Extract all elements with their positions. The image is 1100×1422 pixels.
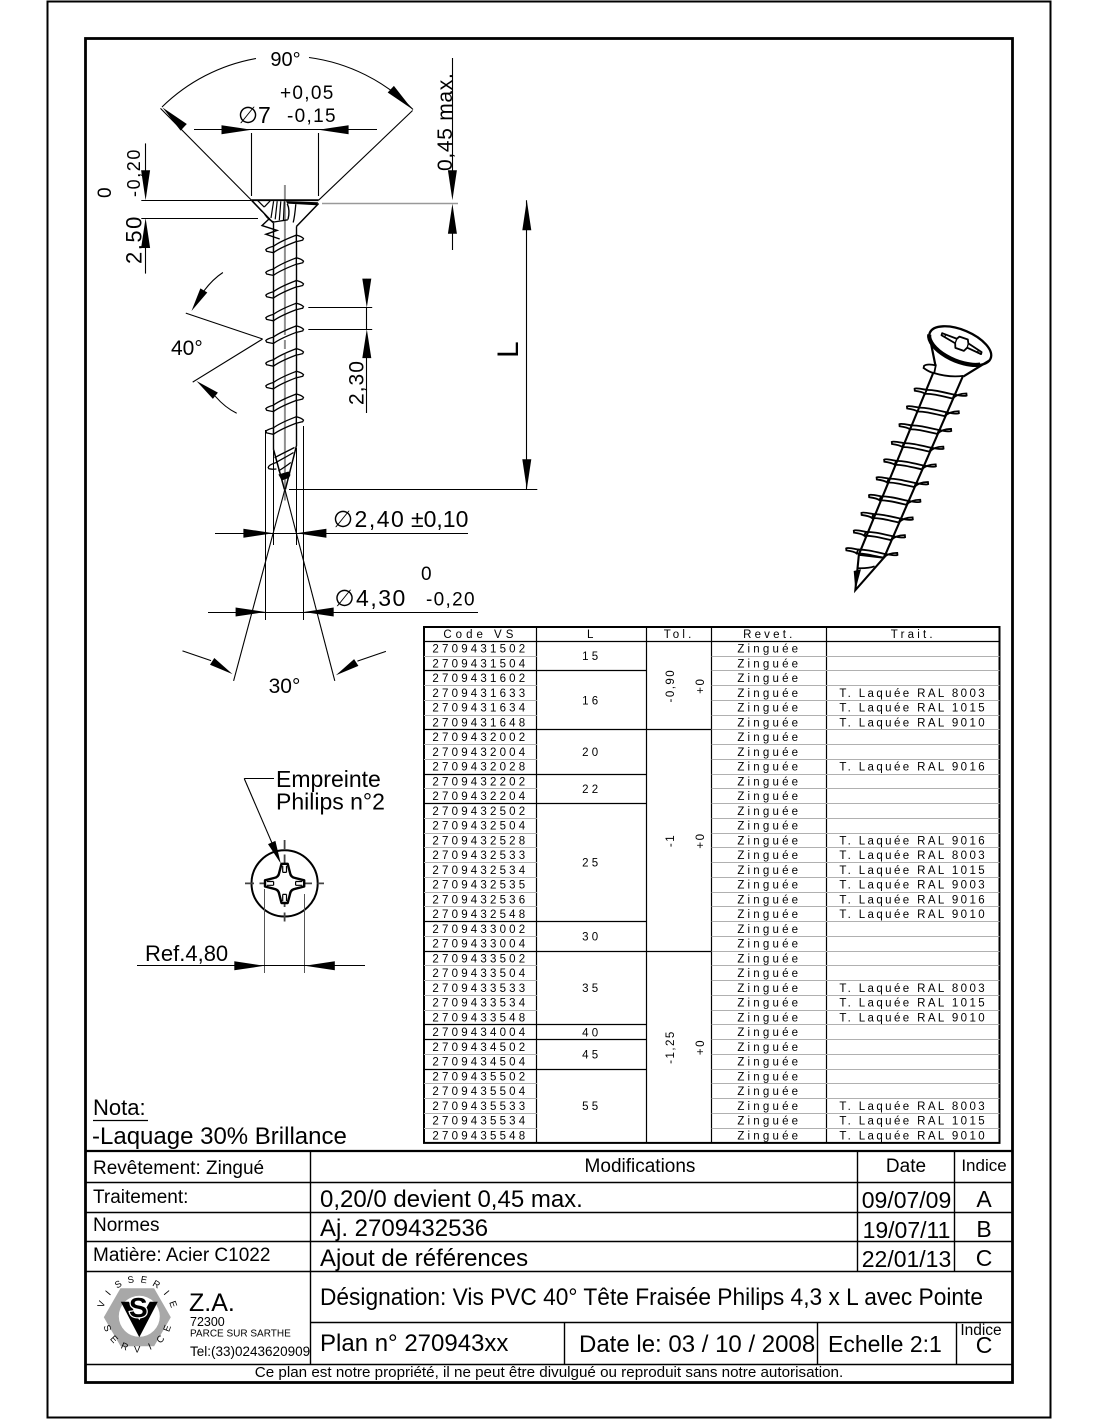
svg-text:35: 35 xyxy=(582,983,601,995)
svg-text:30°: 30° xyxy=(269,675,301,698)
svg-text:40°: 40° xyxy=(171,337,203,360)
svg-text:2,50: 2,50 xyxy=(122,215,147,264)
svg-text:Désignation: Vis PVC 40° Tête: Désignation: Vis PVC 40° Tête Fraisée Ph… xyxy=(320,1284,983,1311)
svg-text:2709431648: 2709431648 xyxy=(432,717,528,729)
svg-text:-0,90: -0,90 xyxy=(665,669,677,703)
svg-text:-1: -1 xyxy=(665,834,677,847)
svg-text:-1,25: -1,25 xyxy=(665,1030,677,1064)
svg-text:Zinguée: Zinguée xyxy=(737,850,801,862)
svg-text:2709432504: 2709432504 xyxy=(432,821,528,833)
svg-text:-0,15: -0,15 xyxy=(287,106,337,127)
svg-text:2709432528: 2709432528 xyxy=(432,835,528,847)
svg-text:Tel:(33)0243620909: Tel:(33)0243620909 xyxy=(190,1344,310,1359)
svg-text:Zinguée: Zinguée xyxy=(737,1057,801,1069)
svg-text:±0,10: ±0,10 xyxy=(411,506,468,532)
svg-text:Zinguée: Zinguée xyxy=(737,924,801,936)
svg-text:Zinguée: Zinguée xyxy=(737,894,801,906)
svg-text:2709435504: 2709435504 xyxy=(432,1086,528,1098)
svg-text:C: C xyxy=(976,1332,993,1358)
svg-text:72300: 72300 xyxy=(190,1315,225,1329)
svg-text:40: 40 xyxy=(582,1027,601,1039)
svg-text:T. Laquée RAL 9010: T. Laquée RAL 9010 xyxy=(839,909,987,921)
svg-text:-0,20: -0,20 xyxy=(124,148,144,197)
svg-text:Zinguée: Zinguée xyxy=(737,968,801,980)
svg-text:Aj. 2709432536: Aj. 2709432536 xyxy=(320,1215,488,1242)
svg-text:2709432204: 2709432204 xyxy=(432,791,528,803)
svg-text:T. Laquée RAL 1015: T. Laquée RAL 1015 xyxy=(839,865,987,877)
svg-text:2709433534: 2709433534 xyxy=(432,998,528,1010)
svg-text:B: B xyxy=(976,1216,991,1242)
svg-text:Code VS: Code VS xyxy=(443,629,517,641)
svg-text:-Laquage 30% Brillance: -Laquage 30% Brillance xyxy=(92,1123,347,1150)
svg-text:2709432548: 2709432548 xyxy=(432,909,528,921)
svg-text:Zinguée: Zinguée xyxy=(737,939,801,951)
svg-text:T. Laquée RAL 9016: T. Laquée RAL 9016 xyxy=(839,762,987,774)
svg-text:+0: +0 xyxy=(695,832,707,848)
svg-text:Ce plan est notre propriété, i: Ce plan est notre propriété, il ne peut … xyxy=(255,1364,843,1381)
svg-text:55: 55 xyxy=(582,1101,601,1113)
svg-text:2709434504: 2709434504 xyxy=(432,1057,528,1069)
svg-text:T. Laquée RAL 8003: T. Laquée RAL 8003 xyxy=(839,850,987,862)
svg-text:L: L xyxy=(492,341,525,358)
svg-text:2709433004: 2709433004 xyxy=(432,939,528,951)
svg-text:Zinguée: Zinguée xyxy=(737,1101,801,1113)
svg-text:2709431602: 2709431602 xyxy=(432,673,528,685)
svg-text:2709435533: 2709435533 xyxy=(432,1101,528,1113)
svg-text:T. Laquée RAL 8003: T. Laquée RAL 8003 xyxy=(839,688,987,700)
svg-text:Date: Date xyxy=(886,1156,926,1177)
svg-text:0: 0 xyxy=(421,564,432,585)
svg-text:15: 15 xyxy=(582,651,601,663)
svg-text:∅2,40: ∅2,40 xyxy=(333,506,405,532)
svg-text:T. Laquée RAL 8003: T. Laquée RAL 8003 xyxy=(839,1101,987,1113)
svg-text:2709432028: 2709432028 xyxy=(432,762,528,774)
svg-text:Zinguée: Zinguée xyxy=(737,880,801,892)
svg-text:2709433002: 2709433002 xyxy=(432,924,528,936)
svg-text:Zinguée: Zinguée xyxy=(737,688,801,700)
svg-text:T. Laquée RAL 9010: T. Laquée RAL 9010 xyxy=(839,1130,987,1142)
svg-text:90°: 90° xyxy=(270,49,300,71)
svg-text:Plan n° 270943xx: Plan n° 270943xx xyxy=(320,1330,508,1357)
svg-text:22/01/13: 22/01/13 xyxy=(862,1246,952,1272)
svg-text:Zinguée: Zinguée xyxy=(737,998,801,1010)
svg-text:0: 0 xyxy=(95,187,116,198)
svg-text:T. Laquée RAL 9003: T. Laquée RAL 9003 xyxy=(839,880,987,892)
svg-text:2709432535: 2709432535 xyxy=(432,880,528,892)
svg-text:V: V xyxy=(134,1344,141,1355)
svg-text:Normes: Normes xyxy=(93,1215,160,1236)
svg-text:Ajout de références: Ajout de références xyxy=(320,1245,528,1272)
svg-text:Zinguée: Zinguée xyxy=(737,909,801,921)
svg-text:S: S xyxy=(129,1292,148,1323)
svg-text:Zinguée: Zinguée xyxy=(737,776,801,788)
svg-text:Nota:: Nota: xyxy=(93,1095,146,1120)
svg-text:45: 45 xyxy=(582,1049,601,1061)
svg-text:T. Laquée RAL 9010: T. Laquée RAL 9010 xyxy=(839,1012,987,1024)
svg-text:T. Laquée RAL 1015: T. Laquée RAL 1015 xyxy=(839,1116,987,1128)
svg-text:Date le: 03 / 10 / 2008: Date le: 03 / 10 / 2008 xyxy=(579,1331,815,1358)
svg-text:Zinguée: Zinguée xyxy=(737,1116,801,1128)
svg-text:09/07/09: 09/07/09 xyxy=(862,1187,952,1213)
svg-text:Trait.: Trait. xyxy=(891,629,936,641)
svg-text:Zinguée: Zinguée xyxy=(737,658,801,670)
svg-text:2709431504: 2709431504 xyxy=(432,658,528,670)
svg-text:Zinguée: Zinguée xyxy=(737,821,801,833)
svg-text:Zinguée: Zinguée xyxy=(737,953,801,965)
svg-text:2709434004: 2709434004 xyxy=(432,1027,528,1039)
svg-text:Zinguée: Zinguée xyxy=(737,673,801,685)
svg-text:Zinguée: Zinguée xyxy=(737,747,801,759)
svg-text:Philips n°2: Philips n°2 xyxy=(276,789,385,815)
svg-text:Zinguée: Zinguée xyxy=(737,1086,801,1098)
svg-text:Tol.: Tol. xyxy=(664,629,695,641)
svg-text:2709432536: 2709432536 xyxy=(432,894,528,906)
svg-text:0,45 max.: 0,45 max. xyxy=(434,72,457,171)
svg-text:Matière: Acier C1022: Matière: Acier C1022 xyxy=(93,1245,270,1266)
svg-text:Zinguée: Zinguée xyxy=(737,644,801,656)
svg-text:T. Laquée RAL 1015: T. Laquée RAL 1015 xyxy=(839,998,987,1010)
svg-text:2709435502: 2709435502 xyxy=(432,1071,528,1083)
svg-text:0,20/0 devient 0,45 max.: 0,20/0 devient 0,45 max. xyxy=(320,1186,583,1213)
svg-text:Z.A.: Z.A. xyxy=(189,1289,235,1317)
svg-text:2709432002: 2709432002 xyxy=(432,732,528,744)
svg-text:19/07/11: 19/07/11 xyxy=(863,1217,951,1243)
svg-text:2709432533: 2709432533 xyxy=(432,850,528,862)
svg-text:Zinguée: Zinguée xyxy=(737,732,801,744)
svg-text:25: 25 xyxy=(582,858,601,870)
svg-text:Zinguée: Zinguée xyxy=(737,865,801,877)
svg-text:Zinguée: Zinguée xyxy=(737,1027,801,1039)
svg-text:Zinguée: Zinguée xyxy=(737,1071,801,1083)
svg-text:2709435534: 2709435534 xyxy=(432,1116,528,1128)
svg-text:-0,20: -0,20 xyxy=(426,590,476,611)
svg-text:2709435548: 2709435548 xyxy=(432,1130,528,1142)
svg-text:2709433504: 2709433504 xyxy=(432,968,528,980)
svg-text:∅4,30: ∅4,30 xyxy=(335,585,407,611)
svg-text:T. Laquée RAL 1015: T. Laquée RAL 1015 xyxy=(839,703,987,715)
svg-text:Zinguée: Zinguée xyxy=(737,1130,801,1142)
svg-text:T. Laquée RAL 9016: T. Laquée RAL 9016 xyxy=(839,835,987,847)
svg-text:20: 20 xyxy=(582,747,601,759)
svg-text:30: 30 xyxy=(582,931,601,943)
svg-text:2709431502: 2709431502 xyxy=(432,644,528,656)
svg-text:T. Laquée RAL 8003: T. Laquée RAL 8003 xyxy=(839,983,987,995)
svg-text:16: 16 xyxy=(582,695,601,707)
svg-text:Zinguée: Zinguée xyxy=(737,983,801,995)
svg-text:Echelle 2:1: Echelle 2:1 xyxy=(828,1331,942,1357)
svg-text:Zinguée: Zinguée xyxy=(737,835,801,847)
svg-text:Traitement:: Traitement: xyxy=(93,1187,188,1208)
svg-text:Zinguée: Zinguée xyxy=(737,791,801,803)
svg-text:22: 22 xyxy=(582,784,601,796)
svg-text:A: A xyxy=(976,1186,992,1212)
svg-text:Zinguée: Zinguée xyxy=(737,703,801,715)
svg-text:Ref.4,80: Ref.4,80 xyxy=(145,941,228,966)
svg-text:+0,05: +0,05 xyxy=(280,83,335,104)
svg-text:∅7: ∅7 xyxy=(238,102,271,128)
svg-text:C: C xyxy=(976,1245,993,1271)
svg-text:T. Laquée RAL 9010: T. Laquée RAL 9010 xyxy=(839,717,987,729)
svg-text:T. Laquée RAL 9016: T. Laquée RAL 9016 xyxy=(839,894,987,906)
svg-text:2709431633: 2709431633 xyxy=(432,688,528,700)
svg-text:Revêtement: Zingué: Revêtement: Zingué xyxy=(93,1158,264,1179)
svg-text:L: L xyxy=(587,629,597,641)
svg-text:2,30: 2,30 xyxy=(346,360,369,405)
svg-text:Zinguée: Zinguée xyxy=(737,1042,801,1054)
svg-text:+0: +0 xyxy=(695,678,707,694)
svg-text:2709432534: 2709432534 xyxy=(432,865,528,877)
svg-text:Zinguée: Zinguée xyxy=(737,806,801,818)
svg-text:2709432004: 2709432004 xyxy=(432,747,528,759)
svg-text:2709433502: 2709433502 xyxy=(432,953,528,965)
svg-text:2709432502: 2709432502 xyxy=(432,806,528,818)
svg-text:PARCE SUR SARTHE: PARCE SUR SARTHE xyxy=(190,1329,291,1340)
svg-text:2709434502: 2709434502 xyxy=(432,1042,528,1054)
svg-text:Zinguée: Zinguée xyxy=(737,762,801,774)
svg-text:Revet.: Revet. xyxy=(743,629,795,641)
svg-text:2709432202: 2709432202 xyxy=(432,776,528,788)
svg-text:2709431634: 2709431634 xyxy=(432,703,528,715)
svg-text:2709433533: 2709433533 xyxy=(432,983,528,995)
svg-text:2709433548: 2709433548 xyxy=(432,1012,528,1024)
svg-text:Zinguée: Zinguée xyxy=(737,717,801,729)
svg-text:Modifications: Modifications xyxy=(585,1156,696,1177)
svg-text:Zinguée: Zinguée xyxy=(737,1012,801,1024)
svg-text:Indice: Indice xyxy=(961,1156,1006,1175)
svg-text:+0: +0 xyxy=(695,1039,707,1055)
